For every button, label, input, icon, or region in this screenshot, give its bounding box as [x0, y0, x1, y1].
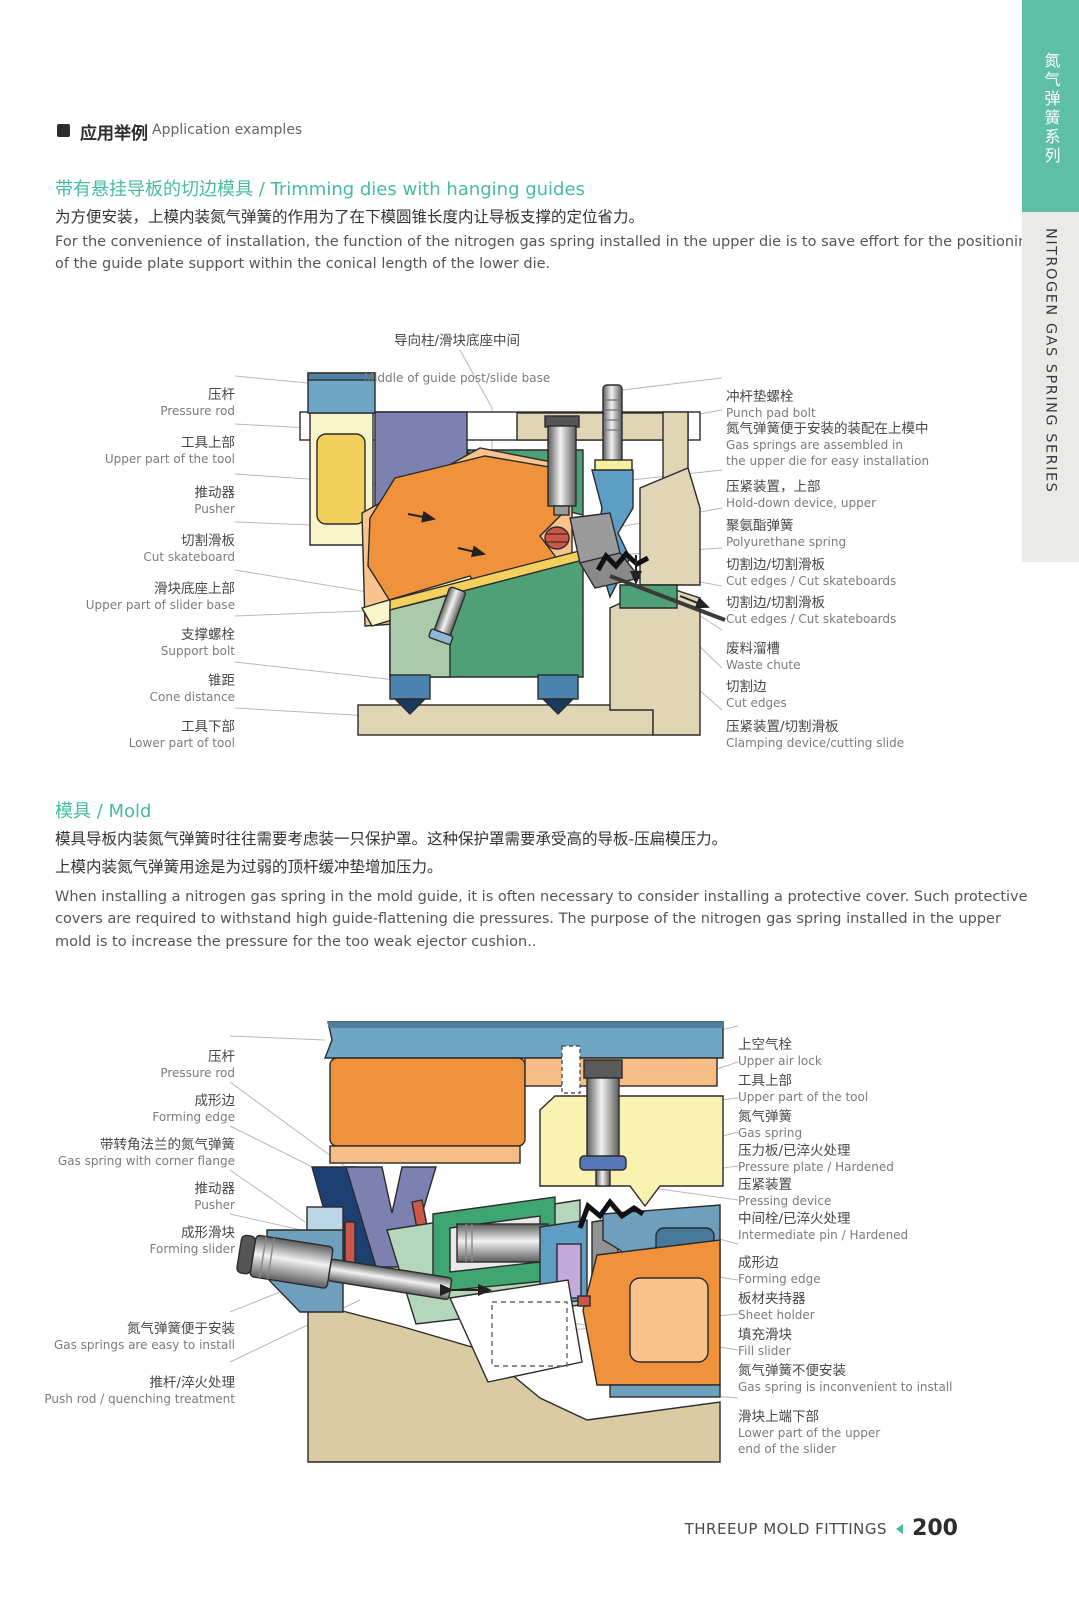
- diagram1-top-label: 导向柱/滑块底座中间 Middle of guide post/slide ba…: [347, 312, 567, 408]
- diagram1-label-upper-tool: 工具上部Upper part of the tool: [5, 414, 235, 468]
- intermediate-pin: [596, 1170, 610, 1186]
- section1-body-zh: 为方便安装，上模内装氮气弹簧的作用为了在下模圆锥长度内让导板支撑的定位省力。: [55, 204, 644, 232]
- slider-upper-end: [610, 1385, 720, 1397]
- diagram1-label-lower-tool: 工具下部Lower part of tool: [5, 698, 235, 752]
- section2-body-en: When installing a nitrogen gas spring in…: [55, 886, 1028, 953]
- diagram2-label-forming-slider: 成形滑块Forming slider: [5, 1204, 235, 1258]
- section2-body-zh: 模具导板内装氮气弹簧时往往需要考虑装一只保护罩。这种保护罩需要承受高的导板-压扁…: [55, 826, 727, 882]
- footer-brand: THREEUP MOLD FITTINGS: [685, 1520, 887, 1538]
- page-footer: THREEUP MOLD FITTINGS 200: [685, 1516, 958, 1541]
- page-title-en: Application examples: [152, 122, 302, 138]
- section2-heading: 模具 / Mold: [55, 797, 151, 823]
- lower-tool-base: [358, 705, 653, 735]
- footer-arrow-icon: [896, 1524, 903, 1534]
- polyurethane-spring: [545, 527, 569, 549]
- upper-air-lock: [562, 1046, 580, 1093]
- page-title-zh: 应用举例: [80, 119, 148, 144]
- diagram2-parts: [236, 1022, 723, 1462]
- diagram2-label-easy-install: 氮气弹簧便于安装Gas springs are easy to install: [5, 1300, 235, 1354]
- section1-heading: 带有悬挂导板的切边模具 / Trimming dies with hanging…: [55, 175, 585, 201]
- section-bullet-icon: [57, 124, 70, 137]
- diagram1-label-pressure-rod: 压杆Pressure rod: [5, 366, 235, 420]
- diagram1-label-clamping-device: 压紧装置/切割滑板Clamping device/cutting slide: [726, 698, 976, 752]
- sidebar-series-band: NITROGEN GAS SPRING SERIES: [1022, 212, 1079, 562]
- diagram1-label-cut-skateboard: 切割滑板Cut skateboard: [5, 512, 235, 566]
- upper-tool-orange: [330, 1058, 525, 1146]
- diagram2-label-push-rod: 推杆/淬火处理Push rod / quenching treatment: [5, 1354, 235, 1408]
- diagram1-label-pusher: 推动器Pusher: [5, 464, 235, 518]
- upper-tool-yellow: [540, 1096, 723, 1206]
- sidebar-series-tab: 氮气弹簧系列: [1022, 0, 1079, 212]
- section1-body-en: For the convenience of installation, the…: [55, 231, 1036, 276]
- gas-spring-vertical: [584, 1060, 622, 1078]
- diagram2-label-slider-upper-end: 滑块上端下部Lower part of the upper end of the…: [738, 1388, 988, 1458]
- catalog-page: 应用举例 Application examples 带有悬挂导板的切边模具 / …: [0, 0, 1079, 1600]
- diagram1-parts: [300, 373, 700, 735]
- sidebar-title-en: NITROGEN GAS SPRING SERIES: [1043, 228, 1059, 493]
- punch-pad-bolt: [603, 385, 622, 467]
- footer-page-number: 200: [912, 1516, 958, 1541]
- gas-spring-cylinder: [548, 426, 576, 506]
- gas-spring-corner-flange: [457, 1224, 548, 1262]
- sidebar-title-zh: 氮气弹簧系列: [1039, 52, 1063, 166]
